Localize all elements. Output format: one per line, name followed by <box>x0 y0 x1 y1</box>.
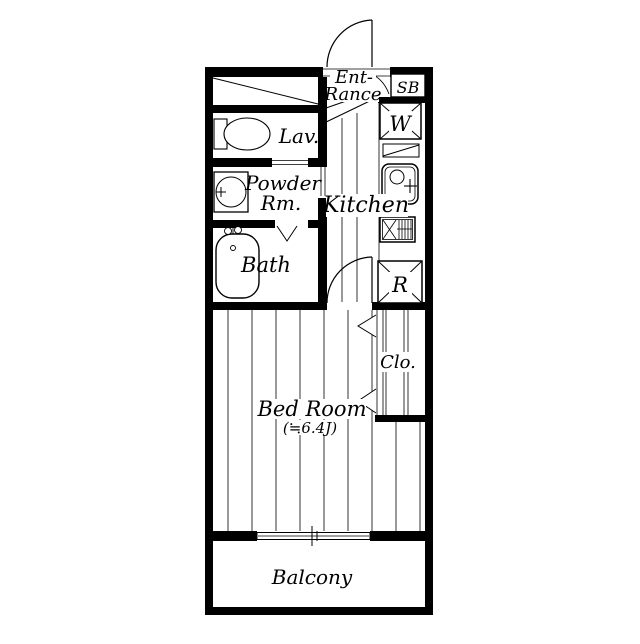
label-powder-room-line2: Rm. <box>260 191 301 215</box>
label-bedroom-size: (≒6.4J) <box>283 419 337 437</box>
powder-sink-icon <box>214 172 248 212</box>
label-bath: Bath <box>240 253 291 277</box>
floor-plan-page: Ent- Rance SB W Lav. Powder Rm. Kitchen … <box>0 0 640 640</box>
label-closet: Clo. <box>380 352 416 373</box>
counter-shelf-icon <box>383 144 419 157</box>
floor-plan: Ent- Rance SB W Lav. Powder Rm. Kitchen … <box>0 0 640 640</box>
label-balcony: Balcony <box>271 565 353 589</box>
label-washing-machine: W <box>389 112 413 136</box>
label-kitchen: Kitchen <box>322 193 409 218</box>
stove-icon <box>380 217 415 242</box>
label-entrance-line2: Rance <box>323 84 381 105</box>
label-refrigerator: R <box>391 273 408 297</box>
label-bedroom: Bed Room <box>257 397 367 421</box>
label-lavatory: Lav. <box>278 124 320 148</box>
label-shoe-box: SB <box>397 78 420 97</box>
toilet-icon <box>214 118 270 150</box>
